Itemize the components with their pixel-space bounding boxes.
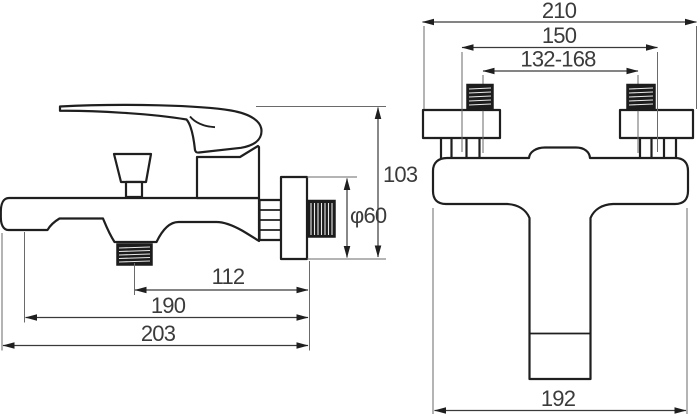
dimension-203: 203 <box>3 321 308 346</box>
dimension-label: 103 <box>383 162 418 187</box>
dimension-label: 190 <box>151 293 186 318</box>
dimension-132-168: 132-168 <box>483 47 638 72</box>
right-supply-inlet <box>627 85 655 111</box>
dimension-label: 112 <box>212 264 245 289</box>
dimension-label: 210 <box>542 0 577 23</box>
spout-body <box>1 198 259 242</box>
dimension-192: 192 <box>435 386 687 411</box>
cartridge-body <box>197 146 259 198</box>
dimension-label: φ60 <box>350 203 387 228</box>
wall-nipple-thread <box>307 201 335 238</box>
diverter-stem <box>126 182 142 197</box>
front-view: 210 150 132-168 192 <box>423 0 697 414</box>
handle-lever <box>60 105 262 153</box>
side-view: 103 φ60 112 190 203 <box>1 105 418 351</box>
diverter-knob <box>114 154 151 182</box>
left-supply-inlet <box>467 85 493 111</box>
mixer-body <box>433 148 688 380</box>
wall-flange <box>281 177 307 259</box>
spout-outlet-thread <box>117 244 152 265</box>
dimension-height-103: 103 <box>378 108 418 258</box>
dimension-label: 203 <box>141 321 176 346</box>
wall-connector-threads <box>260 200 282 240</box>
dimension-190: 190 <box>26 293 309 318</box>
dimension-label: 150 <box>542 23 577 48</box>
nipple-thread-hatch <box>311 203 332 235</box>
dimension-flange-diameter-60: φ60 <box>347 179 387 258</box>
dimension-150: 150 <box>462 23 658 48</box>
dimension-label: 132-168 <box>520 47 596 72</box>
faucet-technical-drawing: 103 φ60 112 190 203 <box>0 0 700 417</box>
right-eccentric-flange <box>620 110 693 138</box>
dimension-112: 112 <box>135 264 308 290</box>
dimension-210: 210 <box>423 0 697 23</box>
dimension-label: 192 <box>541 386 576 411</box>
faucet-technical-drawing-page: 103 φ60 112 190 203 <box>0 0 700 417</box>
